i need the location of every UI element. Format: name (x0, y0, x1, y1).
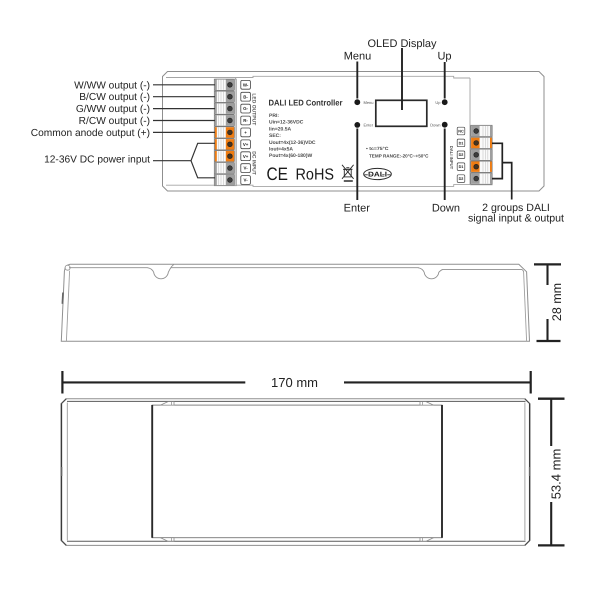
svg-text:53.4 mm: 53.4 mm (549, 449, 564, 500)
svg-text:OLED Display: OLED Display (367, 38, 437, 50)
svg-text:Menu: Menu (344, 51, 372, 63)
svg-text:• tc=75°C: • tc=75°C (366, 146, 389, 151)
svg-text:PRI:: PRI: (269, 113, 279, 119)
svg-text:V-: V- (244, 166, 249, 171)
svg-text:Up: Up (437, 51, 451, 63)
svg-text:Menu: Menu (364, 100, 374, 105)
svg-text:D2: D2 (459, 177, 464, 181)
svg-text:NC: NC (458, 129, 464, 133)
svg-text:W-: W- (243, 82, 249, 87)
svg-text:Uin=12-36VDC: Uin=12-36VDC (269, 120, 304, 126)
svg-text:28 mm: 28 mm (550, 283, 564, 321)
svg-text:DALI: DALI (368, 172, 387, 179)
svg-text:Uout=4x(12-36)VDC: Uout=4x(12-36)VDC (269, 140, 316, 146)
svg-text:D2: D2 (459, 153, 464, 157)
svg-text:W/WW output (-): W/WW output (-) (74, 80, 150, 91)
svg-text:R/CW output (-): R/CW output (-) (79, 116, 150, 127)
svg-text:B/CW output (-): B/CW output (-) (79, 92, 150, 103)
svg-text:TEMP RANGE:-20°C~+50°C: TEMP RANGE:-20°C~+50°C (369, 154, 429, 159)
svg-text:V-: V- (244, 178, 249, 183)
svg-text:DC INPUT: DC INPUT (251, 151, 257, 175)
svg-text:SEC:: SEC: (269, 133, 281, 139)
svg-text:B-: B- (243, 94, 248, 99)
svg-text:Common anode output (+): Common anode output (+) (31, 128, 150, 139)
svg-text:Down: Down (430, 122, 440, 127)
svg-text:R-: R- (243, 118, 248, 123)
svg-text:Iout=4x5A: Iout=4x5A (269, 147, 293, 153)
svg-text:D1: D1 (459, 141, 464, 145)
svg-text:D1: D1 (459, 165, 464, 169)
svg-text:G/WW output (-): G/WW output (-) (76, 104, 150, 115)
svg-text:V+: V+ (243, 154, 249, 159)
svg-text:CE: CE (267, 164, 289, 184)
svg-text:Down: Down (432, 203, 460, 215)
svg-text:12-36V DC power input: 12-36V DC power input (44, 154, 150, 165)
svg-text:DALI INPUT: DALI INPUT (449, 146, 454, 170)
svg-text:G-: G- (243, 106, 248, 111)
svg-text:LED OUTPUT: LED OUTPUT (251, 93, 257, 125)
svg-text:170 mm: 170 mm (271, 375, 318, 390)
svg-text:signal input & output: signal input & output (468, 212, 564, 224)
svg-text:Enter: Enter (364, 123, 374, 128)
svg-text:Enter: Enter (344, 203, 371, 215)
svg-text:RoHS: RoHS (296, 167, 335, 184)
svg-text:DALI LED Controller: DALI LED Controller (269, 98, 344, 108)
svg-text:+: + (244, 130, 247, 135)
svg-text:Up: Up (435, 100, 441, 105)
svg-text:V+: V+ (243, 142, 249, 147)
svg-text:Iin=20.5A: Iin=20.5A (269, 126, 291, 132)
svg-text:Pout=4x(60-180)W: Pout=4x(60-180)W (269, 153, 312, 159)
